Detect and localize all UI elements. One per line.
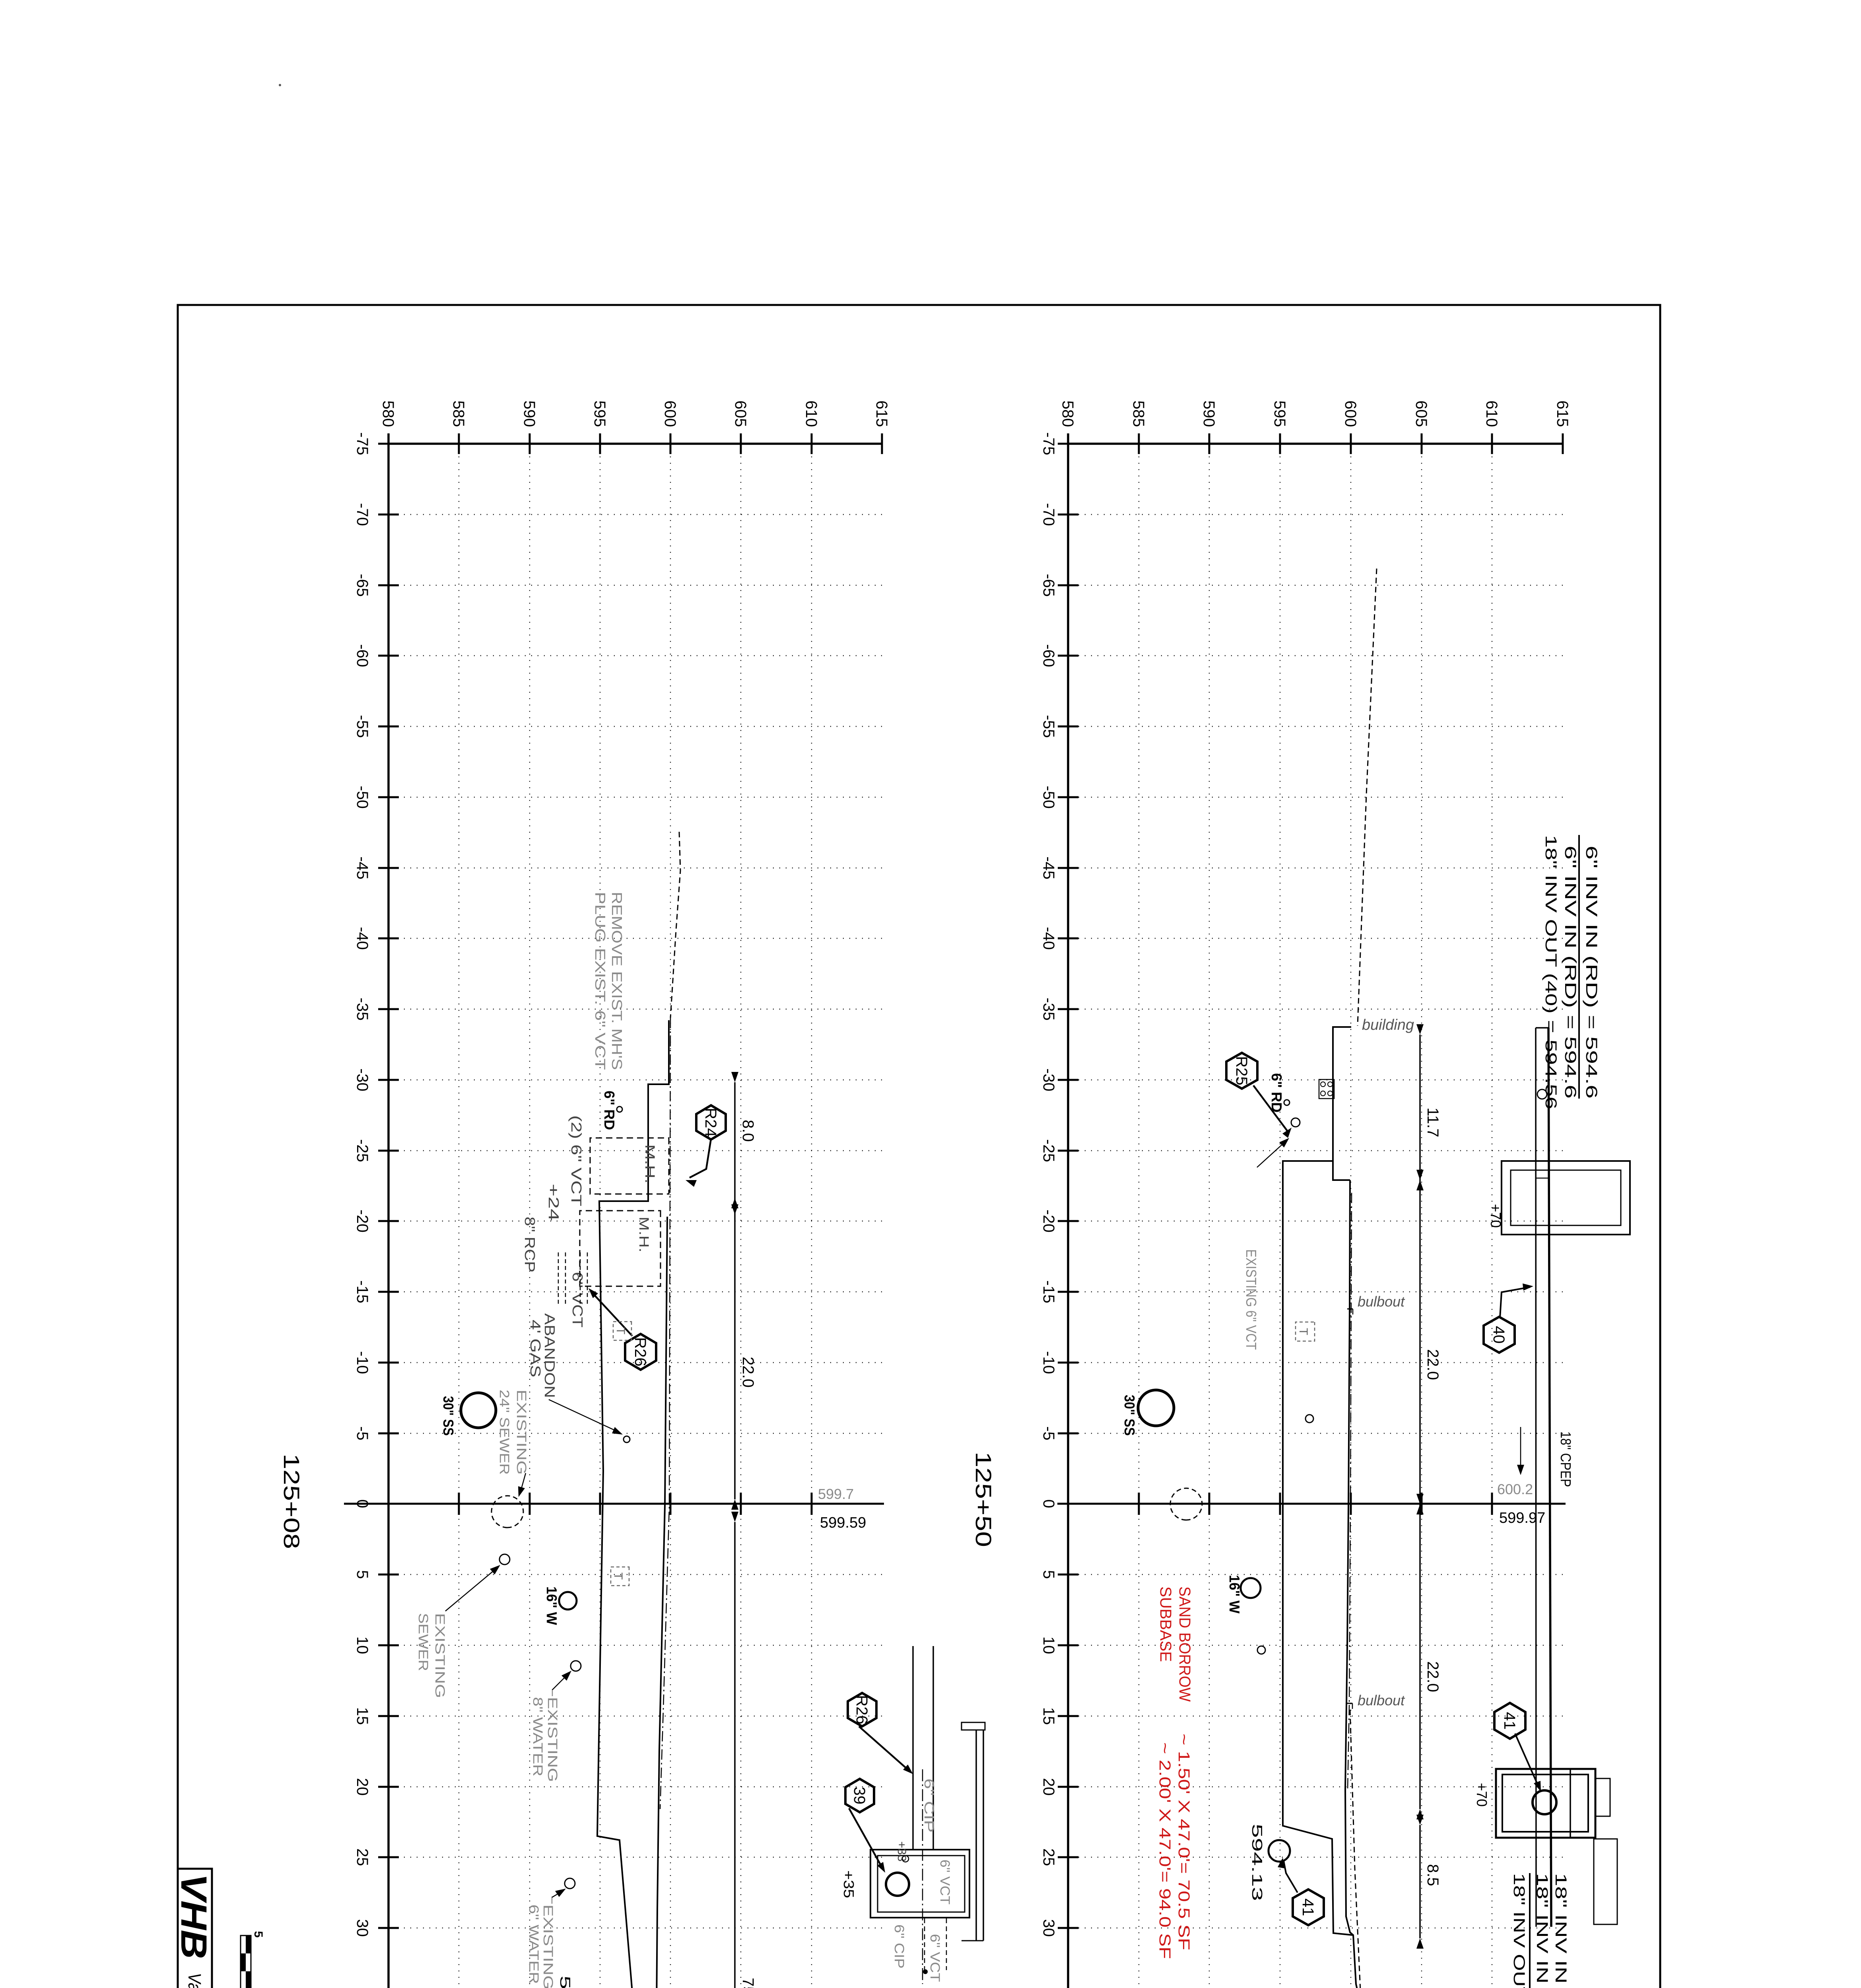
svg-text:125+50: 125+50	[971, 1452, 996, 1547]
svg-text:30" SS: 30" SS	[440, 1396, 457, 1436]
svg-text:6" WATER: 6" WATER	[526, 1905, 541, 1984]
svg-text:24" SEWER: 24" SEWER	[497, 1390, 512, 1475]
svg-text:building: building	[1362, 1017, 1414, 1033]
svg-text:6" INV IN (RD) = 594.6: 6" INV IN (RD) = 594.6	[1562, 846, 1579, 1099]
svg-text:-50: -50	[1040, 786, 1057, 809]
svg-text:16" W: 16" W	[544, 1586, 560, 1625]
svg-text:580: 580	[379, 400, 397, 427]
svg-text:75.0: 75.0	[739, 1978, 757, 1988]
svg-text:18" INV OUT (40) = 594.56: 18" INV OUT (40) = 594.56	[1542, 835, 1560, 1109]
svg-text:T: T	[612, 1573, 625, 1580]
svg-text:-65: -65	[1040, 574, 1057, 597]
svg-text:M.H.: M.H.	[636, 1217, 651, 1252]
svg-text:22.0: 22.0	[739, 1357, 757, 1388]
svg-text:+33: +33	[895, 1841, 908, 1862]
svg-text:8.0: 8.0	[739, 1120, 757, 1142]
svg-text:6" VCT: 6" VCT	[927, 1934, 942, 1982]
svg-text:-5: -5	[354, 1426, 371, 1441]
svg-text:18" INV IN (40) = 594.37: 18" INV IN (40) = 594.37	[1552, 1873, 1570, 1988]
svg-text:593.46: 593.46	[557, 1976, 573, 1988]
svg-text:30: 30	[1040, 1919, 1057, 1937]
svg-text:-15: -15	[1040, 1280, 1057, 1303]
svg-text:R26: R26	[631, 1337, 649, 1366]
svg-text:-25: -25	[1040, 1139, 1057, 1162]
svg-text:R25: R25	[1233, 1056, 1250, 1085]
svg-text:-40: -40	[1040, 927, 1057, 950]
svg-text:-75: -75	[1040, 432, 1057, 455]
svg-text:-60: -60	[354, 644, 371, 667]
svg-text:-70: -70	[354, 503, 371, 526]
svg-text:22.0: 22.0	[1424, 1349, 1441, 1380]
svg-text:EXISTING: EXISTING	[545, 1697, 560, 1782]
svg-text:-65: -65	[354, 574, 371, 597]
svg-text:EXISTING: EXISTING	[514, 1390, 529, 1475]
svg-text:25: 25	[1040, 1848, 1057, 1866]
svg-text:-75: -75	[354, 432, 371, 455]
svg-text:bulbout: bulbout	[1358, 1293, 1405, 1310]
svg-text:EXISTING: EXISTING	[432, 1613, 447, 1698]
svg-text:0: 0	[1040, 1499, 1057, 1508]
svg-text:41: 41	[1299, 1899, 1317, 1916]
svg-text:M.H.: M.H.	[642, 1144, 657, 1184]
svg-text:615: 615	[1554, 400, 1571, 427]
svg-text:595: 595	[1271, 400, 1288, 427]
svg-text:590: 590	[521, 400, 538, 427]
svg-text:20: 20	[354, 1778, 371, 1796]
svg-text:605: 605	[1412, 400, 1430, 427]
svg-text:615: 615	[873, 400, 890, 427]
svg-text:-55: -55	[1040, 715, 1057, 738]
svg-text:8" WATER: 8" WATER	[530, 1697, 545, 1776]
svg-text:(2) 6" VCT: (2) 6" VCT	[568, 1115, 585, 1206]
svg-text:22.0: 22.0	[1424, 1661, 1441, 1692]
svg-text:-45: -45	[354, 856, 371, 879]
svg-text:599.97: 599.97	[1499, 1510, 1545, 1526]
svg-text:125+08: 125+08	[279, 1454, 304, 1549]
svg-text:T: T	[1297, 1328, 1310, 1335]
svg-text:SEWER: SEWER	[416, 1613, 431, 1671]
svg-text:VHB: VHB	[173, 1873, 214, 1959]
svg-text:-40: -40	[354, 927, 371, 950]
svg-text:-20: -20	[354, 1209, 371, 1233]
svg-text:585: 585	[450, 400, 467, 427]
svg-text:11.7: 11.7	[1424, 1108, 1441, 1138]
svg-text:~ 2.00' X 47.0'= 94.0 SF: ~ 2.00' X 47.0'= 94.0 SF	[1156, 1742, 1173, 1959]
svg-text:-10: -10	[354, 1351, 371, 1374]
svg-text:6" INV IN (RD) = 594.6: 6" INV IN (RD) = 594.6	[1583, 846, 1600, 1099]
svg-text:600: 600	[661, 400, 679, 427]
svg-text:4' GAS: 4' GAS	[527, 1320, 544, 1377]
svg-text:585: 585	[1130, 400, 1147, 427]
svg-text:-35: -35	[1040, 998, 1057, 1021]
svg-text:6" RD: 6" RD	[601, 1091, 618, 1130]
svg-text:20: 20	[1040, 1778, 1057, 1796]
svg-text:+70: +70	[1488, 1204, 1504, 1228]
svg-text:Vanasse Hangen Brustlin, Inc.: Vanasse Hangen Brustlin, Inc.	[185, 1973, 205, 1988]
svg-text:6" CIP: 6" CIP	[892, 1924, 907, 1969]
svg-text:-25: -25	[354, 1139, 371, 1162]
svg-text:R26: R26	[853, 1695, 870, 1724]
svg-text:T: T	[614, 1327, 627, 1334]
svg-text:18" CPEP: 18" CPEP	[1558, 1431, 1574, 1487]
svg-text:40: 40	[1490, 1326, 1507, 1344]
svg-text:15: 15	[354, 1707, 371, 1725]
svg-text:599.7: 599.7	[818, 1486, 854, 1502]
svg-text:REMOVE EXIST. MH'S: REMOVE EXIST. MH'S	[609, 892, 625, 1070]
svg-text:600.2: 600.2	[1497, 1481, 1533, 1497]
svg-text:30: 30	[354, 1919, 371, 1937]
svg-text:18" INV IN (42) = 594.37: 18" INV IN (42) = 594.37	[1533, 1873, 1551, 1988]
svg-text:599.59: 599.59	[820, 1514, 866, 1531]
svg-text:580: 580	[1059, 400, 1076, 427]
svg-text:6" CIP: 6" CIP	[921, 1778, 936, 1833]
svg-text:-55: -55	[354, 715, 371, 738]
svg-text:SUBBASE: SUBBASE	[1157, 1586, 1174, 1662]
svg-text:6" VCT: 6" VCT	[569, 1272, 586, 1328]
svg-text:EXISTING 6" VCT: EXISTING 6" VCT	[1243, 1249, 1259, 1350]
svg-text:15: 15	[1040, 1707, 1057, 1725]
svg-text:bulbout: bulbout	[1358, 1692, 1405, 1708]
svg-text:-10: -10	[1040, 1351, 1057, 1374]
svg-text:16" W: 16" W	[1226, 1575, 1243, 1613]
svg-text:41: 41	[1501, 1712, 1518, 1730]
svg-text:+35: +35	[841, 1870, 857, 1898]
svg-text:8" RCP: 8" RCP	[522, 1217, 538, 1272]
svg-text:10: 10	[354, 1637, 371, 1654]
svg-text:30" SS: 30" SS	[1121, 1395, 1138, 1436]
svg-text:5: 5	[354, 1570, 371, 1579]
svg-text:-45: -45	[1040, 856, 1057, 879]
svg-text:-5: -5	[1040, 1426, 1057, 1441]
svg-text:-70: -70	[1040, 503, 1057, 526]
svg-text:-35: -35	[354, 998, 371, 1021]
svg-text:6" VCT: 6" VCT	[937, 1860, 952, 1905]
svg-text:ABANDON: ABANDON	[542, 1313, 558, 1398]
svg-text:610: 610	[802, 400, 820, 427]
svg-text:R24: R24	[702, 1108, 719, 1137]
svg-text:+24: +24	[546, 1184, 562, 1221]
svg-text:SAND BORROW: SAND BORROW	[1176, 1586, 1193, 1702]
svg-text:-30: -30	[1040, 1068, 1057, 1091]
svg-text:25: 25	[354, 1848, 371, 1866]
svg-text:39: 39	[851, 1787, 868, 1805]
svg-text:595: 595	[591, 400, 608, 427]
svg-text:EXISTING: EXISTING	[540, 1905, 556, 1988]
svg-text:+70: +70	[1474, 1783, 1490, 1807]
svg-text:6" RD: 6" RD	[1269, 1073, 1285, 1112]
svg-text:-20: -20	[1040, 1209, 1057, 1233]
svg-text:18" INV OUT (41) = 594.27: 18" INV OUT (41) = 594.27	[1510, 1873, 1528, 1988]
svg-text:610: 610	[1483, 400, 1500, 427]
svg-text:-30: -30	[354, 1068, 371, 1091]
svg-text:605: 605	[732, 400, 749, 427]
svg-text:-60: -60	[1040, 644, 1057, 667]
svg-text:590: 590	[1200, 400, 1218, 427]
svg-text:~ 1.50' X 47.0'= 70.5 SF: ~ 1.50' X 47.0'= 70.5 SF	[1175, 1734, 1193, 1950]
svg-text:5: 5	[252, 1931, 265, 1938]
svg-text:5: 5	[1040, 1570, 1057, 1579]
svg-text:-15: -15	[354, 1280, 371, 1303]
svg-text:-50: -50	[354, 786, 371, 809]
svg-text:8.5: 8.5	[1424, 1864, 1441, 1886]
svg-text:594.13: 594.13	[1249, 1824, 1265, 1901]
svg-text:10: 10	[1040, 1637, 1057, 1654]
svg-text:600: 600	[1342, 400, 1359, 427]
svg-text:PLUG EXIST. 6" VCT: PLUG EXIST. 6" VCT	[592, 892, 608, 1070]
